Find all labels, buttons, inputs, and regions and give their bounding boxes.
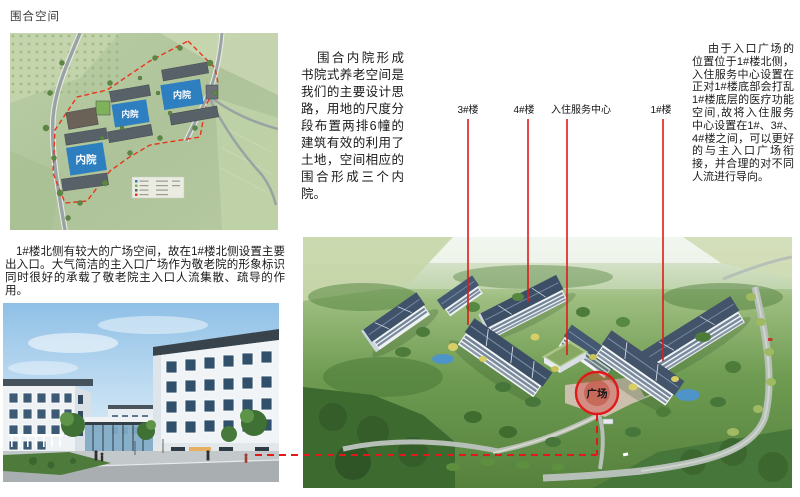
courtyard-paragraph: 围合内院形成书院式养老空间是我们的主要设计思路，用地的尺度分段布置两排6幢的建筑… [301, 50, 404, 203]
site-plan-legend [132, 177, 184, 198]
cloud [98, 316, 208, 334]
plaza-paragraph: 1#楼北侧有较大的广场空间，故在1#楼北侧设置主要出入口。大气简洁的主入口广场作… [5, 246, 285, 298]
page-title: 围合空间 [10, 8, 60, 24]
courtyard-3-label: 内院 [76, 153, 97, 166]
callout-service-center: 入住服务中心 [551, 101, 611, 116]
presentation-slide: 围合空间 [0, 0, 800, 497]
cloud [8, 361, 78, 375]
service-center-paragraph: 由于入口广场的位置位于1#楼北侧，入住服务中心设置在正对1#楼底部会打乱1#楼底… [692, 43, 794, 184]
callout-building-4: 4#楼 [513, 101, 534, 116]
pond [432, 354, 454, 364]
aerial-view-image [303, 237, 792, 488]
courtyard-2-label: 内院 [121, 109, 139, 119]
site-plan-image: 内院 内院 内院 [10, 33, 278, 230]
cloud [28, 333, 118, 353]
plaza-label: 广场 [587, 386, 608, 401]
right-building [153, 329, 279, 463]
callout-building-1: 1#楼 [650, 101, 671, 116]
courtyard-1-label: 内院 [173, 89, 191, 100]
car [768, 338, 773, 341]
entrance-photo-image [3, 303, 279, 482]
pond [676, 389, 700, 401]
entrance-gate [603, 419, 613, 424]
callout-building-3: 3#楼 [457, 101, 478, 116]
